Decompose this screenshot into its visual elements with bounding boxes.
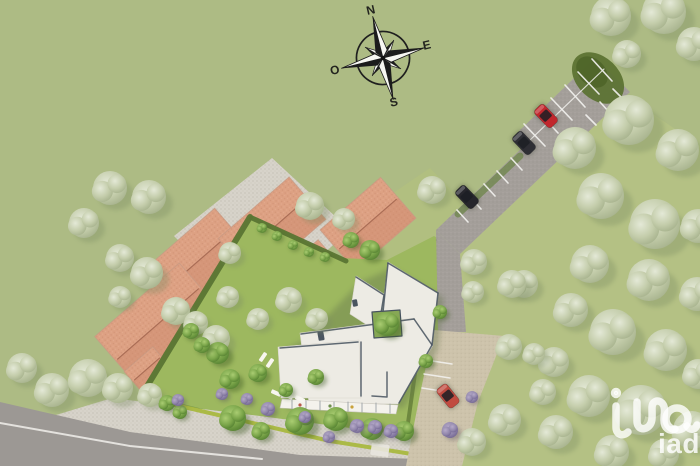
tree-canopy xyxy=(116,376,133,393)
tree-canopy xyxy=(403,423,414,434)
tree-canopy xyxy=(107,174,126,193)
tree-canopy xyxy=(651,204,679,232)
tree-canopy xyxy=(510,273,525,288)
tree-canopy xyxy=(356,420,364,428)
tree-canopy xyxy=(304,412,311,419)
tree-canopy xyxy=(390,425,398,433)
compass-rose-graphic xyxy=(323,0,443,118)
tree-canopy xyxy=(625,100,653,128)
tree-canopy xyxy=(190,325,199,334)
tree-faded xyxy=(68,208,105,243)
tree-canopy xyxy=(610,314,635,339)
tree-canopy xyxy=(315,310,327,322)
tree-canopy xyxy=(214,328,229,343)
tree-canopy xyxy=(246,394,253,401)
tree-canopy xyxy=(439,306,447,314)
tree-canopy xyxy=(334,409,347,422)
tree-canopy xyxy=(257,366,267,376)
tree-canopy xyxy=(292,241,298,247)
tree-canopy xyxy=(228,244,240,256)
tree-canopy xyxy=(276,232,282,238)
tree-canopy xyxy=(470,431,485,446)
tree-canopy xyxy=(675,133,698,156)
compass-rose xyxy=(323,0,443,118)
tree-canopy xyxy=(572,131,595,154)
tree-canopy xyxy=(229,371,240,382)
tree-canopy xyxy=(267,403,275,411)
tree-canopy xyxy=(608,0,630,22)
tree-faded xyxy=(612,40,647,72)
tree-canopy xyxy=(256,310,268,322)
tree-canopy xyxy=(541,382,555,396)
tree-canopy xyxy=(503,407,521,425)
tree-canopy xyxy=(553,418,572,437)
tree-canopy xyxy=(315,371,324,380)
tree-canopy xyxy=(369,242,380,253)
tree-canopy xyxy=(261,224,267,230)
tree-faded xyxy=(131,180,173,219)
tree-faded xyxy=(108,286,135,311)
tree-canopy xyxy=(374,421,382,429)
tree-canopy xyxy=(216,344,228,356)
terrace xyxy=(370,443,389,457)
tree-canopy xyxy=(350,234,359,243)
iad-logo: iad xyxy=(604,380,700,466)
tree-canopy xyxy=(472,252,486,266)
tree-canopy xyxy=(221,389,228,396)
tree-canopy xyxy=(646,263,669,286)
tree-canopy xyxy=(260,424,270,434)
tree-canopy xyxy=(532,345,544,357)
tree-canopy xyxy=(328,432,335,439)
tree-canopy xyxy=(287,290,301,304)
tree-canopy xyxy=(118,247,133,262)
tree-canopy xyxy=(430,179,445,194)
tree-canopy xyxy=(324,253,330,259)
tree-canopy xyxy=(568,296,587,315)
tree-canopy xyxy=(146,183,165,202)
tree-canopy xyxy=(598,178,623,203)
tree-canopy xyxy=(471,283,483,295)
tree-faded xyxy=(590,0,639,42)
tree-canopy xyxy=(85,363,106,384)
tree-canopy xyxy=(177,395,184,402)
tree-canopy xyxy=(587,249,608,270)
tree-canopy xyxy=(552,350,569,367)
tree-canopy xyxy=(308,248,314,254)
tree-canopy xyxy=(471,392,478,399)
balcony-plant xyxy=(298,403,301,406)
tree-canopy xyxy=(308,195,323,210)
tree-canopy xyxy=(226,288,238,300)
balcony-plant xyxy=(328,404,331,407)
iad-logo-text: iad xyxy=(658,428,700,460)
tree-faded xyxy=(92,171,134,210)
tree-canopy xyxy=(507,337,521,351)
terrace xyxy=(370,443,389,457)
tree-canopy xyxy=(231,408,245,422)
tree-canopy xyxy=(118,288,130,300)
site-plan-rendering: N E O S iad xyxy=(0,0,700,466)
tree-canopy xyxy=(20,356,37,373)
tree-canopy xyxy=(663,333,686,356)
tree-canopy xyxy=(82,211,99,228)
tree-canopy xyxy=(145,260,163,278)
balcony-plant xyxy=(350,405,353,408)
tree-canopy xyxy=(201,339,210,348)
tree-canopy xyxy=(625,43,640,58)
tree-canopy xyxy=(385,314,398,327)
tree-canopy xyxy=(194,313,207,326)
tree-canopy xyxy=(148,385,161,398)
tree-canopy xyxy=(342,210,354,222)
tree-canopy xyxy=(285,384,293,392)
tree-canopy xyxy=(49,376,68,395)
tree-canopy xyxy=(425,355,433,363)
tree-canopy xyxy=(174,300,189,315)
tree-canopy xyxy=(449,424,458,433)
